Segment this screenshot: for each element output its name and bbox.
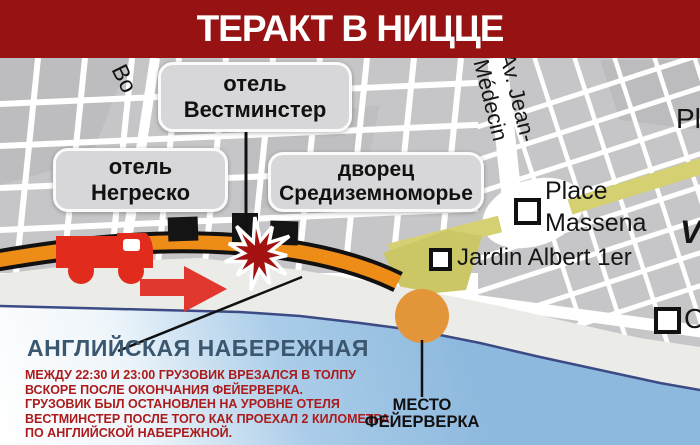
building-marker: [168, 216, 199, 241]
cours-label-partial: C: [684, 303, 700, 335]
cours-marker: [654, 307, 681, 334]
vieille-ville-label-partial: V: [680, 214, 700, 251]
page-title: ТЕРАКТ В НИЦЦЕ: [0, 0, 700, 58]
place-massena-line2: Massena: [545, 209, 646, 237]
jardin-albert-label: Jardin Albert 1er: [457, 244, 632, 272]
place-massena-marker: [514, 198, 541, 225]
fireworks-label: МЕСТО ФЕЙЕРВЕРКА: [355, 397, 489, 430]
place-massena-line1: Place: [545, 177, 608, 205]
palace-line1: дворец: [338, 158, 414, 182]
westminster-line2: Вестминстер: [184, 97, 327, 123]
callout-palace-mediterranee: дворец Средиземноморье: [268, 152, 484, 212]
attack-description: МЕЖДУ 22:30 И 23:00 ГРУЗОВИК ВРЕЗАЛСЯ В …: [25, 368, 390, 441]
callout-hotel-negresco: отель Негреско: [53, 148, 228, 212]
callout-hotel-westminster: отель Вестминстер: [158, 62, 352, 132]
infographic: ТЕРАКТ В НИЦЦЕ Bo Av. Jean- Médecin Pl P…: [0, 0, 700, 445]
promenade-title: АНГЛИЙСКАЯ НАБЕРЕЖНАЯ: [27, 335, 369, 362]
street-label-place-partial: Pl: [676, 103, 700, 135]
westminster-line1: отель: [223, 71, 286, 97]
header-bar: ТЕРАКТ В НИЦЦЕ: [0, 0, 700, 58]
fireworks-circle: [395, 289, 449, 343]
jardin-albert-marker: [429, 248, 452, 271]
palace-line2: Средиземноморье: [279, 182, 473, 206]
negresco-line2: Негреско: [91, 180, 190, 206]
place-massena-label: Place Massena: [545, 175, 646, 239]
negresco-line1: отель: [109, 154, 172, 180]
